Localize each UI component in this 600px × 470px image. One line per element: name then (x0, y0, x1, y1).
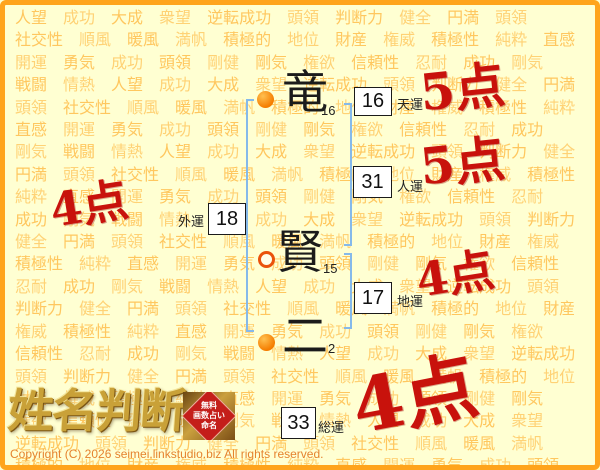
bg-word: 健全 (543, 142, 575, 164)
bg-word: 順風 (175, 165, 207, 187)
chi-un-score-mark: 4点 (413, 246, 497, 304)
bg-word: 円満 (447, 8, 479, 30)
bg-word: 社交性 (63, 98, 111, 120)
bg-word: 健全 (15, 232, 47, 254)
bg-word: 逆転成功 (207, 8, 271, 30)
seal-line-3: 命名 (183, 421, 235, 431)
bg-word: 権威 (15, 322, 47, 344)
bg-word: 直感 (127, 254, 159, 276)
bg-word: 剛健 (303, 187, 335, 209)
bg-word: 直感 (15, 120, 47, 142)
bg-word: 成功 (479, 456, 511, 465)
bg-word: 頭領 (15, 98, 47, 120)
bg-word: 社交性 (271, 367, 319, 389)
bg-word: 大成 (255, 142, 287, 164)
seal-text: 無料 画数占い 命名 (183, 401, 235, 431)
bg-word: 頭領 (207, 120, 239, 142)
bg-word: 人望 (111, 75, 143, 97)
bg-word: 直感 (175, 322, 207, 344)
bg-word: 剛健 (207, 53, 239, 75)
bg-word: 順風 (223, 232, 255, 254)
bg-word: 順風 (79, 30, 111, 52)
bg-word: 判断力 (15, 299, 63, 321)
bg-word: 満帆 (223, 98, 255, 120)
bg-word: 剛健 (255, 120, 287, 142)
bg-word: 成功 (63, 277, 95, 299)
bg-word: 暖風 (463, 434, 495, 456)
bg-word: 純粋 (543, 98, 575, 120)
stroke-count-1: 16 (321, 103, 335, 118)
copyright-text: Copyright (C) 2026 seimei.linkstudio.biz… (10, 447, 323, 461)
bg-word: 戦闘 (15, 75, 47, 97)
bg-word: 戦闘 (63, 142, 95, 164)
bg-word: 開運 (63, 120, 95, 142)
bg-word: 勇気 (223, 254, 255, 276)
bg-word: 剛気 (111, 277, 143, 299)
bg-word: 信頼性 (351, 53, 399, 75)
bg-word: 地位 (495, 299, 527, 321)
seal-stamp: 無料 画数占い 命名 (183, 392, 235, 440)
bg-word: 情熱 (63, 75, 95, 97)
bg-word: 権欲 (511, 322, 543, 344)
bg-word: 成功 (63, 8, 95, 30)
stroke-count-2: 15 (323, 261, 337, 276)
bg-word: 剛気 (511, 53, 543, 75)
seal-line-1: 無料 (183, 401, 235, 411)
bg-word: 情熱 (111, 142, 143, 164)
bg-word: 頭領 (287, 8, 319, 30)
bg-word: 勇気 (319, 389, 351, 411)
bg-word: 満帆 (511, 434, 543, 456)
bg-word: 戦闘 (223, 344, 255, 366)
bg-word: 忍耐 (15, 277, 47, 299)
bg-word: 暖風 (175, 98, 207, 120)
bg-word: 純粋 (495, 30, 527, 52)
bg-word: 積極性 (15, 254, 63, 276)
bg-word: 剛健 (415, 322, 447, 344)
bg-word: 直感 (335, 456, 367, 465)
bg-word: 信頼性 (15, 344, 63, 366)
bg-word: 頭領 (255, 187, 287, 209)
bg-word: 成功 (111, 53, 143, 75)
bg-word: 忍耐 (79, 344, 111, 366)
chi-un-value-box: 17 (354, 282, 392, 314)
bg-word: 衆望 (303, 142, 335, 164)
bg-word: 勇気 (159, 187, 191, 209)
bg-word: 満帆 (319, 232, 351, 254)
bg-word: 頭領 (175, 299, 207, 321)
bg-word: 逆転成功 (351, 142, 415, 164)
bg-word: 円満 (127, 299, 159, 321)
site-logo-seimei-handan[interactable]: 姓名判断 (6, 386, 186, 437)
bg-word: 開運 (223, 322, 255, 344)
bg-word: 剛気 (303, 120, 335, 142)
bg-word: 積極的 (223, 30, 271, 52)
jin-un-score-mark: 5点 (418, 134, 508, 193)
bg-word: 純粋 (15, 187, 47, 209)
bg-word: 社交性 (15, 30, 63, 52)
bg-word: 勇気 (111, 120, 143, 142)
ten-un-value-box: 16 (354, 87, 392, 116)
bg-word: 衆望 (159, 8, 191, 30)
bg-word: 暖風 (127, 30, 159, 52)
bg-word: 成功 (207, 142, 239, 164)
bg-word: 開運 (15, 53, 47, 75)
seal-line-2: 画数占い (183, 411, 235, 421)
bg-word: 戦闘 (159, 277, 191, 299)
bg-word: 剛気 (511, 389, 543, 411)
bg-word: 剛気 (463, 322, 495, 344)
bg-word: 社交性 (223, 299, 271, 321)
bg-word: 信頼性 (511, 254, 559, 276)
bg-word: 衆望 (511, 411, 543, 433)
bg-word: 財産 (543, 299, 575, 321)
bg-word: 剛気 (15, 142, 47, 164)
bg-word: 頭領 (495, 8, 527, 30)
bg-word: 円満 (543, 75, 575, 97)
gai-un-label: 外運 (172, 211, 204, 230)
bg-word: 剛健 (367, 254, 399, 276)
bg-word: 成功 (159, 120, 191, 142)
bg-word: 純粋 (127, 322, 159, 344)
bg-word: 開運 (175, 254, 207, 276)
bg-word: 成功 (127, 344, 159, 366)
bg-word: 社交性 (159, 232, 207, 254)
bg-word: 順風 (127, 98, 159, 120)
bg-word: 逆転成功 (399, 210, 463, 232)
bg-word: 地位 (543, 367, 575, 389)
char-marker-filled-icon (257, 91, 274, 108)
bg-word: 人望 (255, 277, 287, 299)
bg-word: 頭領 (223, 367, 255, 389)
bg-word: 頭領 (111, 232, 143, 254)
ten-un-score-mark: 5点 (418, 60, 508, 119)
bg-word: 円満 (15, 165, 47, 187)
bg-word: 頭領 (527, 277, 559, 299)
bg-word: 積極性 (527, 165, 575, 187)
bg-word: 積極性 (63, 322, 111, 344)
bg-word: 権威 (383, 30, 415, 52)
bg-word: 人望 (15, 8, 47, 30)
bg-word: 人望 (159, 142, 191, 164)
bg-word: 開運 (383, 456, 415, 465)
bg-word: 健全 (79, 299, 111, 321)
bg-word: 積極性 (431, 30, 479, 52)
bg-word: 積極的 (367, 232, 415, 254)
bg-word: 逆転成功 (511, 344, 575, 366)
bg-word: 頭領 (159, 53, 191, 75)
bg-word: 権欲 (351, 120, 383, 142)
bg-word: 地位 (287, 30, 319, 52)
bg-word: 権威 (527, 232, 559, 254)
jin-un-label: 人運 (397, 176, 423, 195)
bg-word: 頭領 (479, 210, 511, 232)
stroke-count-3: 2 (328, 341, 335, 356)
ten-un-label: 天運 (397, 94, 423, 113)
bg-word: 大成 (111, 8, 143, 30)
bg-word: 成功 (511, 120, 543, 142)
sou-un-label: 総運 (318, 417, 344, 436)
bg-word: 満帆 (175, 30, 207, 52)
gai-un-value-box: 18 (208, 203, 246, 235)
bg-word: 成功 (303, 277, 335, 299)
bg-word: 剛気 (175, 344, 207, 366)
sou-un-value-box: 33 (281, 407, 316, 439)
bg-word: 健全 (399, 8, 431, 30)
bg-word: 純粋 (79, 254, 111, 276)
bg-word: 暖風 (223, 165, 255, 187)
gai-un-score-mark: 4点 (47, 176, 131, 234)
sou-un-score-mark: 4点 (346, 349, 483, 446)
bg-word: 直感 (543, 30, 575, 52)
bg-word: 成功 (15, 210, 47, 232)
bg-word: 成功 (159, 75, 191, 97)
bg-word: 判断力 (527, 210, 575, 232)
bg-word: 勇気 (431, 456, 463, 465)
bg-word: 判断力 (335, 8, 383, 30)
bg-word: 満帆 (271, 165, 303, 187)
name-char-3: 二 (282, 314, 328, 360)
bg-word: 積極的 (479, 367, 527, 389)
bg-word: 勇気 (63, 53, 95, 75)
bg-word: 情熱 (207, 277, 239, 299)
bg-word: 衆望 (351, 210, 383, 232)
char-marker-filled-icon (258, 334, 275, 351)
bg-word: 大成 (207, 75, 239, 97)
name-char-2: 賢 (277, 230, 323, 276)
seimei-handan-result-page: 人望成功大成衆望逆転成功頭領判断力健全円満頭領社交性順風暖風満帆積極的地位財産権… (0, 0, 600, 470)
bg-word: 頭領 (527, 456, 559, 465)
bg-word: 財産 (335, 30, 367, 52)
bg-word: 頭領 (367, 322, 399, 344)
char-marker-open-icon (258, 251, 275, 268)
jin-un-value-box: 31 (353, 166, 392, 198)
bg-word: 忍耐 (511, 187, 543, 209)
